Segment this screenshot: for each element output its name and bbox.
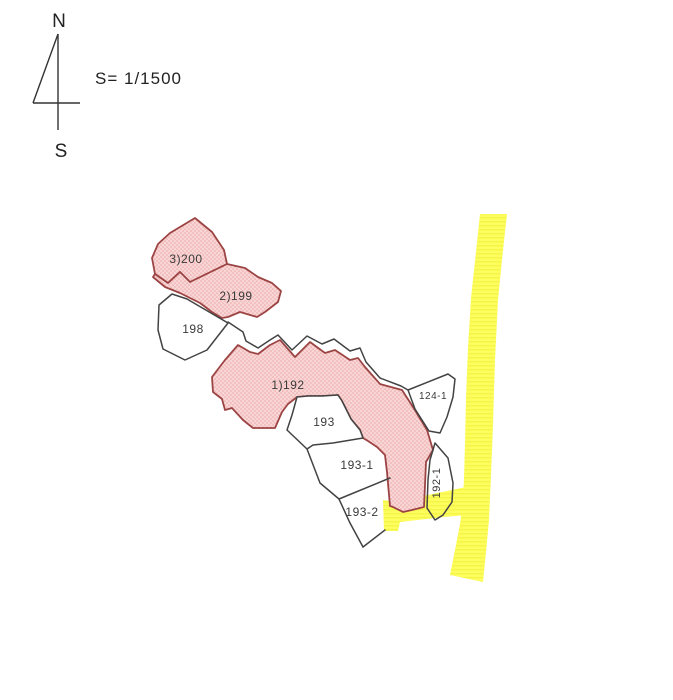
north-arrow-lines [33,34,80,130]
parcel-label-192: 1)192 [271,378,304,392]
parcel-label-200: 3)200 [169,252,202,266]
scale-text: S= 1/1500 [95,69,182,88]
parcel-label-193-1: 193-1 [340,458,373,472]
parcel-label-192-1: 192-1 [431,468,443,499]
compass-north-label: N [52,11,66,32]
parcel-label-193-2: 193-2 [345,505,378,519]
parcel-label-193: 193 [313,415,335,429]
parcel-label-199: 2)199 [219,289,252,303]
boundary-bottom-193-2 [363,530,385,547]
parcel-label-124-1: 124-1 [419,391,447,402]
parcel-label-198: 198 [182,322,204,336]
compass-needle-diagonal [33,34,58,103]
compass-south-label: S [55,141,68,162]
cadastral-map-page: N S S= 1/1500 3)2002)1991)192198193124-1… [0,0,673,700]
compass-group: N S S= 1/1500 [33,11,182,162]
map-svg: N S S= 1/1500 3)2002)1991)192198193124-1… [0,0,673,700]
boundary-divider-193-1-193-2 [339,478,390,499]
road-main [450,214,507,582]
